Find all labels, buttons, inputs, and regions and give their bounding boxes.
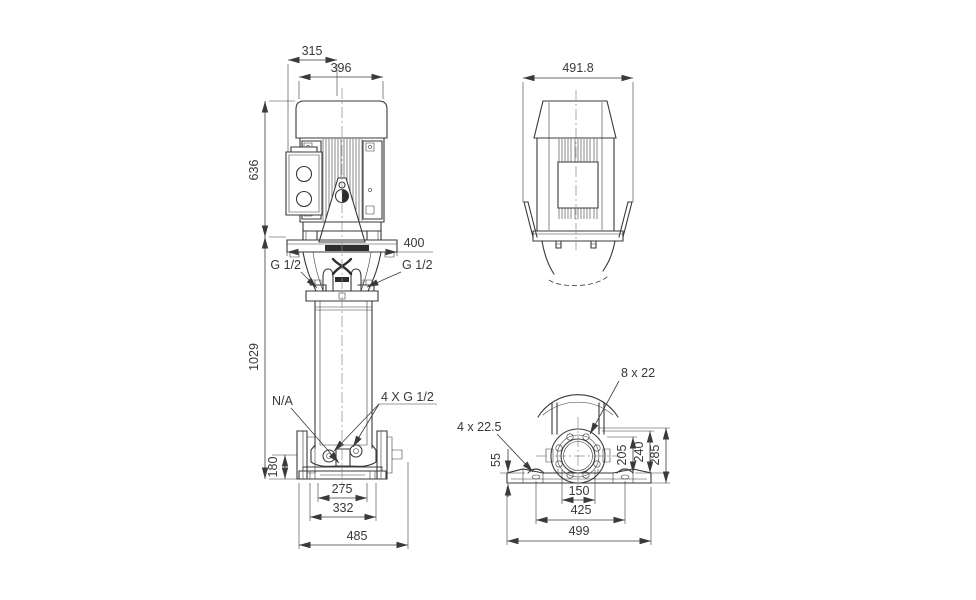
dim-400: 400 (404, 236, 425, 250)
label-4x225: 4 x 22.5 (457, 420, 502, 434)
dim-396: 396 (331, 61, 352, 75)
terminal-box-lid (291, 147, 317, 152)
terminal-box (286, 152, 322, 215)
motor-body-side (537, 138, 614, 230)
drain-plug (350, 445, 362, 457)
foot-bolt-hole (532, 475, 540, 479)
sleeve-arc-outer (538, 395, 618, 417)
sleeve-arc-inner (543, 402, 613, 415)
motor-fins-side (559, 139, 597, 219)
dim-205: 205 (615, 445, 629, 466)
dim-425: 425 (571, 503, 592, 517)
foot-bolt-hole (621, 475, 629, 479)
dim-240: 240 (632, 442, 646, 463)
leader-4xg12-b (353, 404, 379, 447)
stool-shrouds (524, 202, 632, 237)
label-g12-right: G 1/2 (402, 258, 433, 272)
dim-332: 332 (333, 501, 354, 515)
label-g12-left: G 1/2 (270, 258, 301, 272)
label-4xg12: 4 X G 1/2 (381, 390, 434, 404)
base-plate-end (507, 469, 651, 483)
dim-1029: 1029 (247, 343, 261, 371)
dim-150: 150 (569, 484, 590, 498)
base-chamber (311, 445, 376, 466)
leader-g12-right (367, 272, 401, 287)
dim-499: 499 (569, 524, 590, 538)
pump-head-outline (542, 241, 615, 274)
front-view: 315 396 636 1029 400 180 G 1/2 G 1/2 N/A… (247, 44, 437, 549)
nameplate (558, 162, 598, 208)
dim-4918: 491.8 (562, 61, 593, 75)
dim-180: 180 (266, 457, 280, 478)
break-line (549, 276, 608, 286)
flange-plate-side (533, 231, 623, 241)
label-8x22: 8 x 22 (621, 366, 655, 380)
end-view: 8 x 22 4 x 22.5 55 205 240 285 150 425 4… (457, 366, 670, 545)
motor-fan-cover (296, 101, 387, 138)
dim-315: 315 (302, 44, 323, 58)
dim-285: 285 (648, 445, 662, 466)
side-view: 491.8 (523, 61, 633, 286)
sleeve-outer (315, 301, 372, 448)
dim-485: 485 (347, 529, 368, 543)
dim-636: 636 (247, 160, 261, 181)
label-na: N/A (272, 394, 294, 408)
dim-55: 55 (489, 453, 503, 467)
coupling (325, 245, 369, 251)
pump-dimensional-drawing: 315 396 636 1029 400 180 G 1/2 G 1/2 N/A… (0, 0, 976, 600)
fan-cover-side (534, 101, 616, 138)
drawing-canvas: 315 396 636 1029 400 180 G 1/2 G 1/2 N/A… (0, 0, 976, 600)
